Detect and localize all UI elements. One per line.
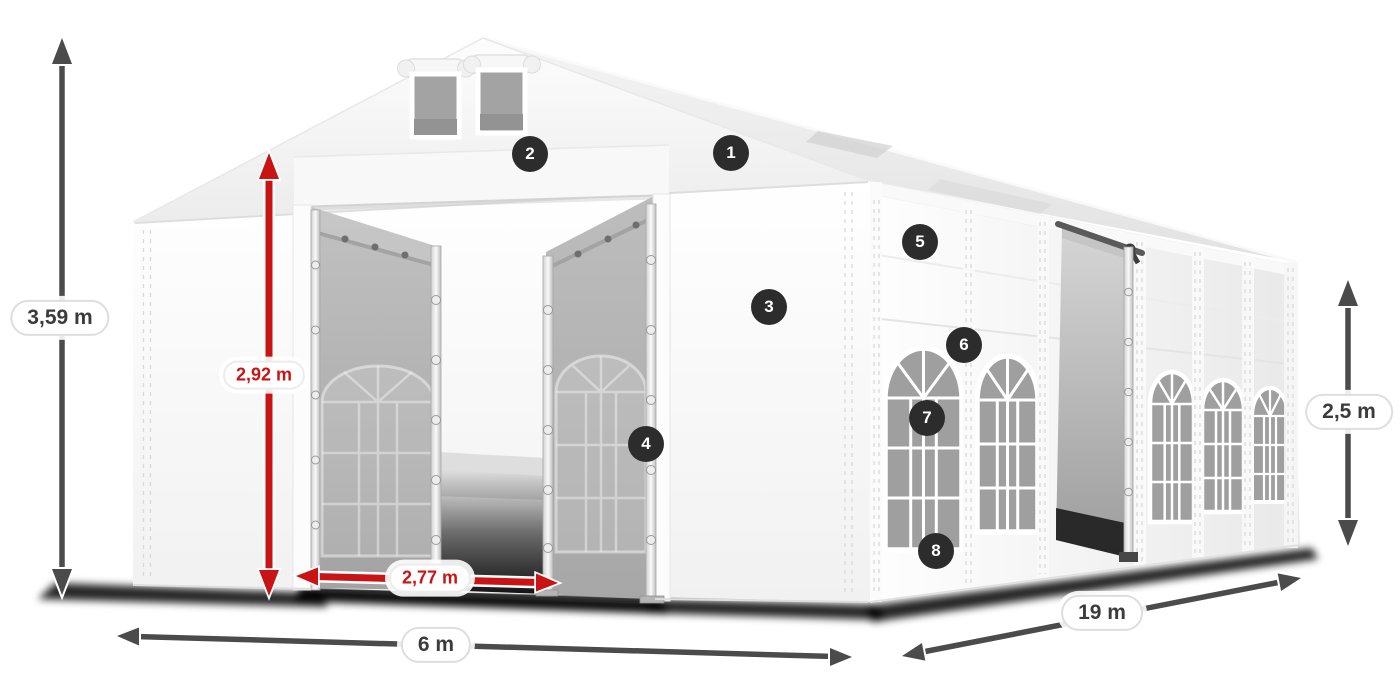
dimension-label-entrance-width: 2,77 m: [389, 564, 471, 593]
dimension-label-total-height: 3,59 m: [10, 300, 109, 336]
callout-badge-4[interactable]: 4: [628, 426, 664, 462]
callout-badge-1[interactable]: 1: [713, 135, 749, 171]
side-door-opening: [1056, 224, 1142, 562]
side-window-5: [1252, 388, 1288, 502]
side-window-1: [885, 348, 962, 550]
dimension-label-side-length: 19 m: [1061, 595, 1143, 631]
side-window-2: [977, 356, 1038, 532]
callout-badge-7[interactable]: 7: [909, 400, 945, 436]
dimension-label-front-width: 6 m: [401, 627, 471, 663]
tent-dimension-diagram: 3,59 m 2,92 m 2,77 m 6 m 19 m 2,5 m 1 2 …: [0, 0, 1400, 700]
callout-badge-2[interactable]: 2: [512, 136, 548, 172]
entrance-left-door-window-print: [322, 366, 434, 556]
side-window-3: [1150, 372, 1194, 522]
side-window-4: [1202, 380, 1244, 512]
callout-badge-8[interactable]: 8: [918, 533, 954, 569]
callout-badge-3[interactable]: 3: [751, 289, 787, 325]
dimension-label-entrance-height: 2,92 m: [223, 361, 305, 390]
callout-badge-5[interactable]: 5: [902, 224, 938, 260]
entrance-left-post: [293, 205, 311, 590]
callout-badge-6[interactable]: 6: [946, 327, 982, 363]
front-width-arrow: [117, 628, 852, 667]
tent-illustration: [0, 0, 1400, 700]
dimension-label-side-wall-height: 2,5 m: [1305, 394, 1393, 430]
